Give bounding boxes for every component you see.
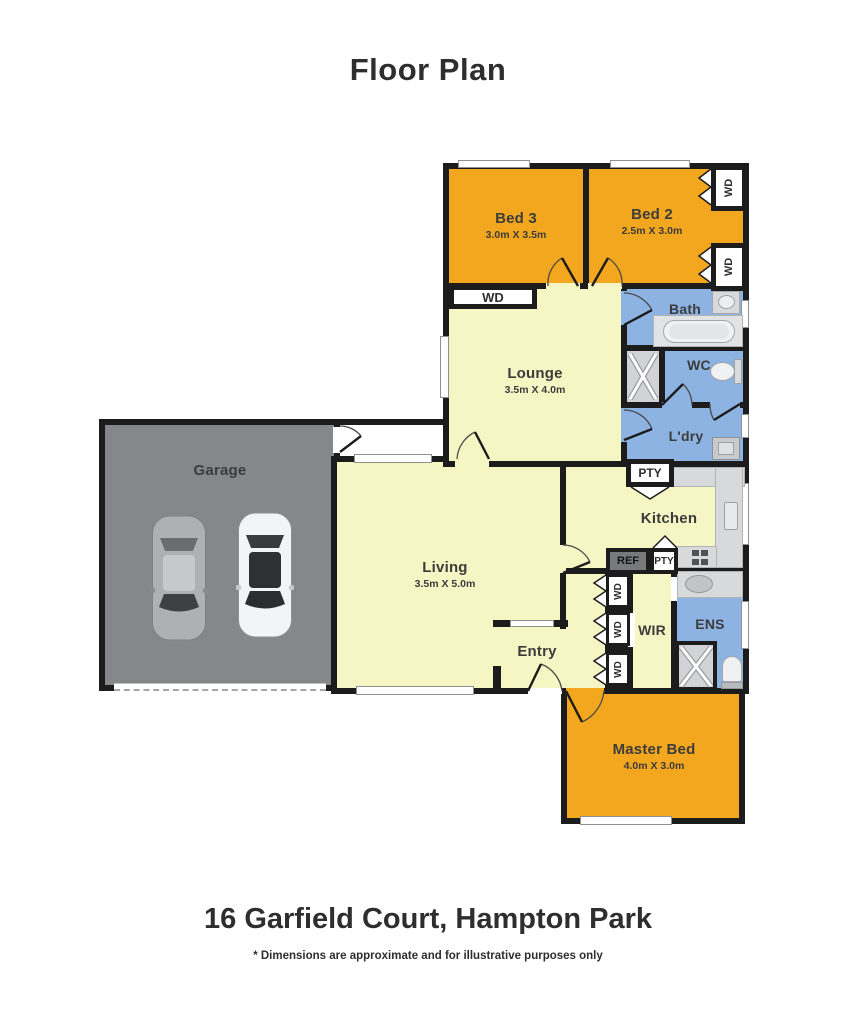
room-label-lounge: Lounge 3.5m X 4.0m (505, 364, 566, 397)
room-label-garage: Garage (194, 461, 247, 481)
pty-label: PTY (638, 466, 661, 480)
ens-door-slit (671, 577, 677, 601)
garage-roller-door (114, 683, 326, 695)
room-label-bed3: Bed 3 3.0m X 3.5m (486, 209, 547, 242)
wd-closet: WD (606, 612, 630, 646)
bed3-dims: 3.0m X 3.5m (486, 229, 547, 243)
page-title: Floor Plan (350, 52, 507, 88)
bath-door-opening (621, 291, 627, 325)
wd-closet: WD (711, 243, 747, 291)
living-dims: 3.5m X 5.0m (415, 578, 476, 592)
wd-closet: WD (449, 285, 537, 309)
room-label-kitchen: Kitchen (641, 509, 697, 529)
room-label-wir: WIR (638, 621, 666, 639)
entry-name: Entry (517, 642, 556, 662)
garage-name: Garage (194, 461, 247, 481)
ens-toilet-icon (722, 656, 742, 682)
lounge-name: Lounge (505, 364, 566, 384)
entry-hall-floor (566, 574, 605, 688)
wd-label: WD (723, 179, 735, 197)
wc-door-opening (662, 402, 692, 408)
disclaimer-text: * Dimensions are approximate and for ill… (253, 950, 603, 962)
fridge-space: REF (606, 548, 650, 574)
front-door-opening (528, 688, 562, 694)
window (458, 160, 530, 168)
lounge-dims: 3.5m X 4.0m (505, 384, 566, 398)
window (580, 816, 672, 825)
wd-label: WD (612, 661, 623, 678)
room-label-ens: ENS (695, 615, 724, 633)
window (741, 414, 749, 438)
ens-sink-icon (685, 575, 713, 593)
entry-wall-stub-right (554, 620, 568, 627)
floor-plan-page: Floor Plan WD WD (0, 0, 856, 1024)
kitchen-name: Kitchen (641, 509, 697, 529)
lounge-door-opening (455, 454, 489, 468)
room-label-bath: Bath (669, 300, 701, 318)
ref-label: REF (617, 555, 639, 567)
hall-wall-eraser (559, 629, 567, 688)
bed2-door-opening (588, 283, 622, 289)
room-label-ldry: L'dry (669, 427, 704, 445)
car-icon (236, 511, 294, 639)
wd-label: WD (723, 258, 735, 276)
wd-label: WD (612, 583, 623, 600)
kitchen-door-opening (560, 545, 566, 573)
wir-name: WIR (638, 621, 666, 639)
wd-label: WD (612, 621, 623, 638)
bed2-name: Bed 2 (622, 205, 683, 225)
property-address: 16 Garfield Court, Hampton Park (204, 903, 652, 936)
room-label-entry: Entry (517, 642, 556, 662)
window (741, 601, 749, 649)
window (440, 336, 449, 398)
room-label-master: Master Bed 4.0m X 3.0m (613, 740, 696, 773)
entry-wall-stub-bottom (493, 666, 501, 694)
entry-cased-opening (510, 620, 554, 627)
toilet-cistern (734, 359, 742, 384)
kitchen-counter-bottom (676, 546, 717, 568)
wd-closet: WD (606, 574, 630, 608)
ens-toilet-base (721, 682, 743, 689)
room-garage (99, 419, 340, 691)
bath-sink-bowl (718, 295, 735, 309)
wd-closet: WD (606, 652, 630, 686)
wd-closet: WD (711, 165, 747, 211)
bath-name: Bath (669, 300, 701, 318)
pantry-closet: PTY (626, 459, 674, 487)
ldry-door-opening (621, 408, 627, 442)
garage-door-opening (333, 427, 341, 453)
car-icon (150, 514, 208, 642)
pantry-closet: PTY (650, 548, 678, 574)
room-label-wc: WC (687, 356, 711, 374)
window (354, 454, 432, 463)
ldry-door-opening-2 (710, 402, 740, 408)
master-door-opening (566, 688, 604, 694)
wc-name: WC (687, 356, 711, 374)
window (356, 686, 474, 695)
window (610, 160, 690, 168)
master-dims: 4.0m X 3.0m (613, 760, 696, 774)
bed3-door-opening (546, 283, 580, 289)
bathtub-inner (669, 324, 729, 339)
ldry-name: L'dry (669, 427, 704, 445)
master-name: Master Bed (613, 740, 696, 760)
living-name: Living (415, 558, 476, 578)
bed3-name: Bed 3 (486, 209, 547, 229)
laundry-trough-bowl (718, 442, 734, 455)
room-label-living: Living 3.5m X 5.0m (415, 558, 476, 591)
room-label-bed2: Bed 2 2.5m X 3.0m (622, 205, 683, 238)
toilet-icon (710, 362, 735, 381)
entry-wall-stub-left (493, 620, 510, 627)
fridge-icon (724, 502, 738, 530)
bed2-dims: 2.5m X 3.0m (622, 225, 683, 239)
garage-door-dash (114, 689, 326, 691)
pty-label: PTY (654, 556, 673, 567)
ens-name: ENS (695, 615, 724, 633)
wd-label: WD (482, 290, 504, 305)
shower-icon (675, 641, 717, 691)
